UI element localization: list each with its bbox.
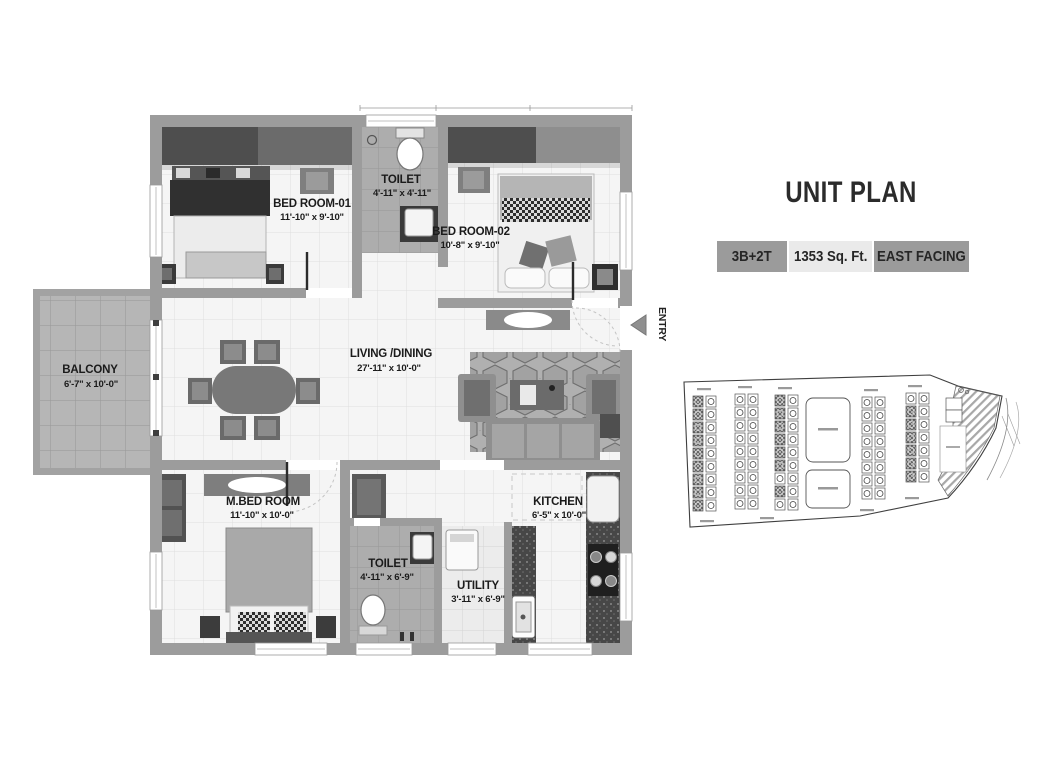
badge-facing: EAST FACING — [874, 241, 969, 272]
room-dims-kitchen: 6'-5" x 10'-0" — [532, 510, 586, 521]
dining-table — [212, 366, 296, 414]
coffee-table — [510, 380, 564, 410]
room-label-utility: UTILITY — [457, 580, 500, 592]
room-dims-bedroom-02: 10'-8" x 9'-10" — [440, 240, 499, 251]
room-dims-toilet-top: 4'-11" x 4'-11" — [373, 188, 431, 199]
dimension-marks — [360, 105, 632, 111]
room-label-bedroom-01: BED ROOM-01 — [273, 198, 351, 210]
entry-indicator: ENTRY — [631, 307, 668, 341]
room-label-bedroom-02: BED ROOM-02 — [432, 226, 510, 238]
key-plan — [684, 375, 1020, 527]
badge-facing-label: EAST FACING — [877, 248, 966, 265]
room-dims-bedroom-01: 11'-10" x 9'-10" — [280, 212, 344, 223]
badge-area: 1353 Sq. Ft. — [789, 241, 872, 272]
room-label-balcony: BALCONY — [62, 364, 118, 376]
badge-configuration-label: 3B+2T — [732, 248, 772, 265]
entry-label: ENTRY — [656, 307, 668, 341]
badge-row: 3B+2T 1353 Sq. Ft. EAST FACING — [717, 241, 969, 272]
utility-fixtures — [446, 530, 478, 570]
floor-plan-svg: BED ROOM-01 11'-10" x 9'-10" TOILET 4'-1… — [0, 0, 1054, 768]
fridge-icon — [587, 476, 619, 522]
badge-area-label: 1353 Sq. Ft. — [794, 248, 867, 265]
room-label-master-bedroom: M.BED ROOM — [226, 496, 300, 508]
floor-plan: BED ROOM-01 11'-10" x 9'-10" TOILET 4'-1… — [33, 105, 668, 655]
room-dims-balcony: 6'-7" x 10'-0" — [64, 379, 118, 390]
room-label-toilet-bottom: TOILET — [368, 558, 408, 570]
room-dims-utility: 3'-11" x 6'-9" — [451, 594, 505, 605]
room-dims-master-bedroom: 11'-10" x 10'-0" — [230, 510, 294, 521]
unit-plan-page: BED ROOM-01 11'-10" x 9'-10" TOILET 4'-1… — [0, 0, 1054, 768]
room-dims-living-dining: 27'-11" x 10'-0" — [357, 363, 421, 374]
room-dims-toilet-bottom: 4'-11" x 6'-9" — [360, 572, 414, 583]
room-label-living-dining: LIVING /DINING — [350, 348, 432, 360]
page-title: UNIT PLAN — [775, 176, 927, 210]
badge-configuration: 3B+2T — [717, 241, 787, 272]
room-label-kitchen: KITCHEN — [533, 496, 583, 508]
entry-arrow-icon — [631, 315, 646, 335]
room-label-toilet-top: TOILET — [381, 174, 421, 186]
